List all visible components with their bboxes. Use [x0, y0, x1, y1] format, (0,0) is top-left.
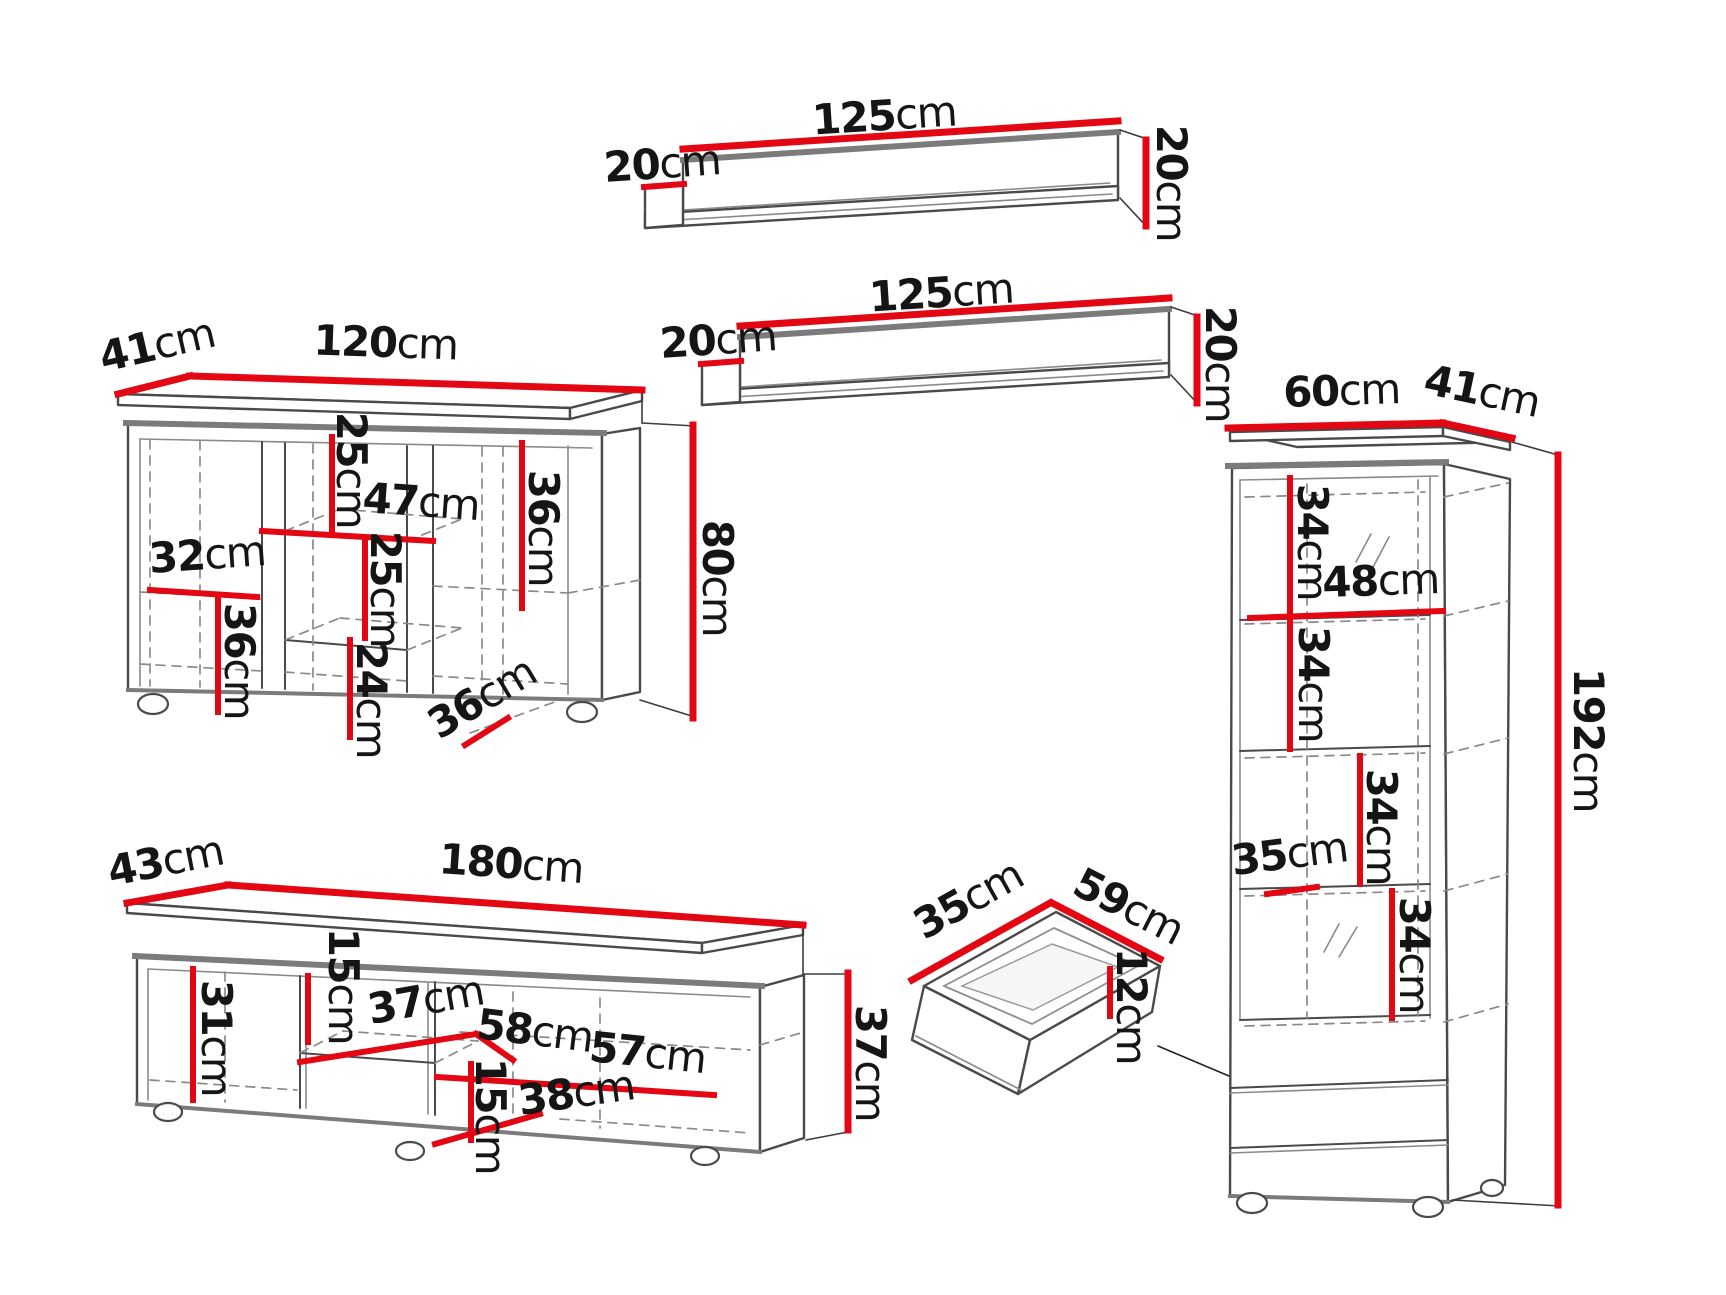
cabinet-height-label: 192cm — [1564, 668, 1613, 812]
foot — [1237, 1193, 1267, 1213]
inner-dim-label-15-bottom: 15cm — [466, 1058, 515, 1174]
sideboard-depth-label: 41cm — [94, 308, 219, 382]
shelf-depth-label: 20cm — [602, 135, 722, 192]
inner-dim-label-47: 47cm — [361, 473, 481, 530]
extension-line — [1452, 1200, 1560, 1206]
foot — [154, 1103, 182, 1121]
drawer-front-width-label: 35cm — [905, 850, 1031, 949]
foot — [396, 1142, 424, 1160]
inner-dim-label-25-mid: 25cm — [361, 531, 410, 647]
diagram-canvas: 125cm 20cm 20cm 125cm 20cm 20cm — [0, 0, 1726, 1295]
tvstand-height-label: 37cm — [846, 1005, 895, 1121]
wall-shelf-top: 125cm 20cm 20cm — [602, 86, 1196, 241]
body-side-face — [1444, 464, 1510, 1202]
foot — [138, 694, 168, 714]
drawer-height-label: 12cm — [1107, 948, 1156, 1064]
shelf-height-label: 20cm — [1147, 125, 1196, 241]
shelf-height-label: 20cm — [1196, 306, 1245, 422]
shelf-end-cap — [645, 185, 683, 228]
sideboard: 41cm 120cm 80cm 25cm 47cm 25cm 32cm 36cm… — [94, 308, 742, 758]
inner-dim-label-34-3: 34cm — [1357, 769, 1406, 885]
extension-line — [642, 423, 695, 426]
furniture-dimension-diagram: 125cm 20cm 20cm 125cm 20cm 20cm — [0, 0, 1726, 1295]
foot — [1481, 1180, 1503, 1196]
body-side-face — [602, 428, 640, 700]
sideboard-width-label: 120cm — [313, 316, 459, 370]
shelf-width-label: 125cm — [811, 86, 958, 144]
inner-dim-label-36-right: 36cm — [519, 470, 568, 586]
display-cabinet: 60cm 41cm 192cm 34cm 48cm 34cm 34cm 35cm… — [1228, 355, 1613, 1217]
cabinet-width-label: 60cm — [1282, 364, 1400, 417]
foot — [567, 702, 597, 722]
body-top-edge — [1228, 462, 1446, 466]
inner-dim-label-32: 32cm — [147, 526, 267, 583]
inner-dim-label-24: 24cm — [347, 642, 396, 758]
shelf-end-cap — [702, 362, 740, 405]
inner-dim-label-34-2: 34cm — [1289, 626, 1338, 742]
wall-shelf-bottom: 125cm 20cm 20cm — [658, 263, 1245, 422]
inner-dim-label-48: 48cm — [1321, 554, 1439, 607]
tvstand-width-label: 180cm — [437, 834, 584, 893]
foot — [1413, 1197, 1443, 1217]
body-side-face — [760, 975, 804, 1152]
shelf-depth-label: 20cm — [658, 311, 778, 368]
inner-dim-label-31: 31cm — [192, 980, 241, 1096]
sideboard-height-label: 80cm — [693, 520, 742, 636]
foot — [691, 1147, 719, 1165]
inner-dim-label-36-left: 36cm — [215, 603, 264, 719]
extension-line — [806, 1132, 848, 1140]
cabinet-depth-label: 41cm — [1420, 355, 1544, 427]
inner-dim-label-34-4: 34cm — [1390, 897, 1439, 1013]
extension-line — [1512, 442, 1558, 455]
width-dimension-line — [1228, 423, 1443, 428]
extension-line — [640, 700, 695, 717]
inner-dim-label-15-top: 15cm — [319, 928, 368, 1044]
shelf-width-label: 125cm — [868, 263, 1015, 321]
tv-stand: 43cm 180cm 37cm 31cm 15cm 37cm 58cm 57cm… — [103, 826, 895, 1175]
